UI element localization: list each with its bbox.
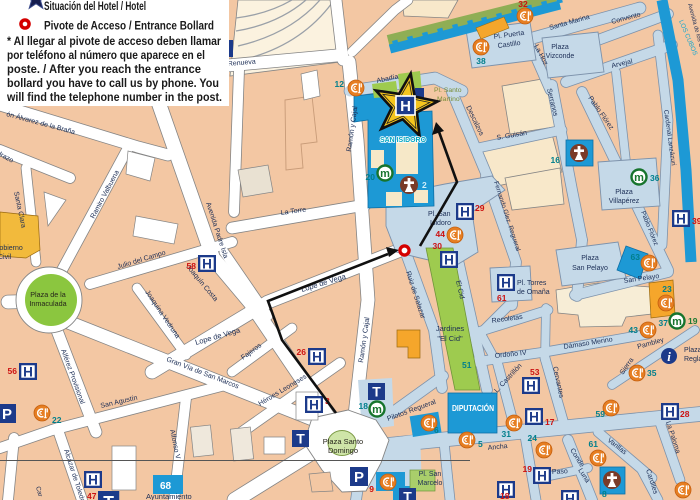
svg-text:35: 35	[647, 368, 657, 378]
svg-text:32: 32	[518, 0, 528, 9]
svg-text:28: 28	[680, 409, 690, 419]
svg-text:por teléfono al número que apa: por teléfono al número que aparece en el	[7, 50, 205, 62]
svg-text:Plaza: Plaza	[551, 44, 569, 51]
svg-text:63: 63	[631, 252, 641, 262]
svg-text:San Pelayo: San Pelayo	[572, 265, 608, 272]
svg-text:Situación del Hotel / Hotel: Situación del Hotel / Hotel	[44, 0, 146, 13]
svg-text:Domingo: Domingo	[328, 446, 358, 455]
svg-text:26: 26	[297, 347, 307, 357]
svg-text:23: 23	[662, 284, 672, 294]
svg-text:47: 47	[87, 491, 97, 500]
svg-text:58: 58	[187, 261, 197, 271]
svg-text:24: 24	[528, 433, 538, 443]
svg-text:39: 39	[692, 216, 700, 226]
svg-text:Pl. Torres: Pl. Torres	[517, 280, 547, 287]
svg-text:16: 16	[551, 155, 561, 165]
svg-text:29: 29	[475, 203, 485, 213]
svg-text:Gobierno: Gobierno	[0, 245, 23, 252]
svg-text:Plaza: Plaza	[615, 189, 633, 196]
svg-text:19: 19	[688, 316, 698, 326]
svg-text:5: 5	[478, 439, 483, 449]
svg-text:59: 59	[596, 409, 606, 419]
svg-text:68: 68	[160, 481, 172, 492]
svg-text:37: 37	[659, 318, 669, 328]
svg-text:Paso: Paso	[552, 468, 568, 476]
svg-text:30: 30	[433, 241, 443, 251]
svg-text:Marcelo: Marcelo	[418, 480, 443, 487]
svg-text:53: 53	[530, 367, 540, 377]
svg-text:"El Cid": "El Cid"	[437, 334, 463, 343]
svg-text:bollard you have to call us by: bollard you have to call us by phone. Yo…	[7, 78, 219, 90]
svg-text:de Omaña: de Omaña	[517, 289, 550, 296]
svg-text:17: 17	[545, 417, 555, 427]
svg-text:18: 18	[500, 491, 510, 500]
svg-text:12: 12	[335, 79, 345, 89]
svg-text:20: 20	[366, 172, 376, 182]
svg-text:Pivote de Acceso / Entrance Bo: Pivote de Acceso / Entrance Bollard	[44, 21, 214, 33]
svg-text:Martino: Martino	[437, 96, 460, 103]
svg-text:i: i	[667, 349, 671, 364]
svg-text:Plaza de la: Plaza de la	[30, 290, 66, 299]
svg-text:* Al llegar al pivote de acces: * Al llegar al pivote de acceso deben ll…	[7, 36, 221, 48]
svg-text:Jardines: Jardines	[436, 324, 465, 333]
svg-text:44: 44	[436, 229, 446, 239]
svg-text:9: 9	[369, 484, 374, 494]
svg-text:Civil: Civil	[0, 254, 12, 261]
svg-text:Plaza: Plaza	[684, 347, 700, 354]
svg-text:8: 8	[602, 489, 607, 499]
svg-text:Pl. Santo: Pl. Santo	[434, 87, 462, 94]
svg-text:31: 31	[502, 429, 512, 439]
svg-text:Ayuntamiento: Ayuntamiento	[146, 492, 192, 500]
svg-text:Plaza Santo: Plaza Santo	[323, 437, 363, 446]
svg-text:61: 61	[589, 439, 599, 449]
svg-text:38: 38	[476, 56, 486, 66]
svg-text:19: 19	[523, 464, 533, 474]
svg-text:6: 6	[434, 425, 439, 435]
svg-text:Villapérez: Villapérez	[609, 198, 640, 205]
svg-text:H: H	[400, 98, 411, 115]
svg-text:2: 2	[422, 180, 427, 190]
svg-text:43: 43	[629, 325, 639, 335]
svg-text:18: 18	[359, 401, 369, 411]
svg-text:Inmaculada: Inmaculada	[29, 299, 66, 308]
svg-text:61: 61	[497, 293, 507, 303]
svg-text:SAN ISIDORO: SAN ISIDORO	[380, 135, 426, 144]
svg-text:Vizconde: Vizconde	[546, 53, 575, 60]
svg-text:will find the telephone number: will find the telephone number in the po…	[6, 92, 222, 104]
svg-text:36: 36	[650, 173, 660, 183]
svg-text:Regla: Regla	[684, 356, 700, 363]
svg-text:22: 22	[52, 415, 62, 425]
svg-text:poste. / After you reach the e: poste. / After you reach the entrance	[7, 64, 201, 76]
svg-text:Pl. San: Pl. San	[419, 471, 442, 478]
svg-text:Plaza: Plaza	[581, 255, 599, 262]
svg-text:DIPUTACIÓN: DIPUTACIÓN	[452, 404, 494, 413]
svg-text:51: 51	[462, 360, 472, 370]
svg-text:56: 56	[8, 366, 18, 376]
